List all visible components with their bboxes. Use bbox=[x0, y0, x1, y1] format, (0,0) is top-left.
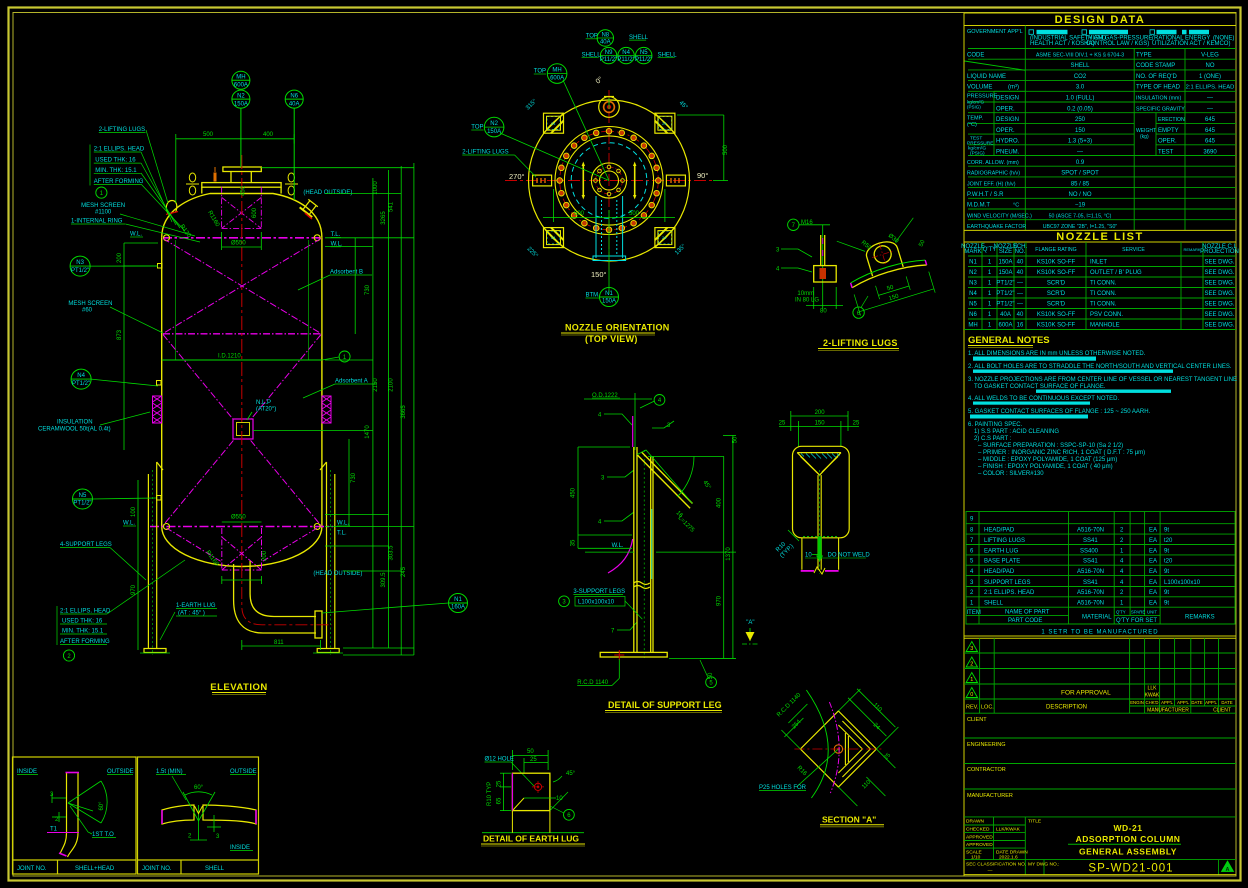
svg-text:REMARK: REMARK bbox=[1183, 247, 1200, 252]
svg-text:DATE: DATE bbox=[1191, 700, 1202, 705]
svg-text:CHK'D: CHK'D bbox=[1146, 700, 1159, 705]
svg-text:HEAD/PAD: HEAD/PAD bbox=[984, 528, 1015, 534]
svg-text:TEMP.: TEMP. bbox=[967, 116, 984, 122]
svg-text:INSULATION: INSULATION bbox=[57, 420, 93, 426]
svg-text:M.D.M.T: M.D.M.T bbox=[967, 203, 990, 209]
svg-text:N6: N6 bbox=[290, 93, 298, 99]
svg-text:L100x100x10: L100x100x10 bbox=[1164, 580, 1201, 586]
svg-text:16: 16 bbox=[1017, 323, 1024, 329]
svg-text:LIQUID NAME: LIQUID NAME bbox=[967, 74, 1006, 80]
svg-text:W.L.: W.L. bbox=[612, 543, 624, 549]
svg-text:TYPE: TYPE bbox=[1136, 53, 1152, 59]
svg-text:SCR'D: SCR'D bbox=[1047, 302, 1066, 308]
svg-text:MIN. THK: 15.1: MIN. THK: 15.1 bbox=[62, 629, 104, 635]
svg-text:W.L.: W.L. bbox=[337, 521, 349, 527]
svg-text:KS10K SO-FF: KS10K SO-FF bbox=[1037, 270, 1076, 276]
svg-text:N.L.P: N.L.P bbox=[256, 400, 271, 406]
svg-text:R.C.D 1140: R.C.D 1140 bbox=[577, 680, 609, 686]
svg-text:CODE STAMP: CODE STAMP bbox=[1136, 63, 1175, 69]
svg-text:85 / 85: 85 / 85 bbox=[1071, 181, 1090, 187]
svg-text:A516-70N: A516-70N bbox=[1077, 569, 1104, 575]
svg-text:LLK: LLK bbox=[1148, 686, 1158, 692]
svg-text:3265: 3265 bbox=[381, 211, 387, 225]
svg-text:2150: 2150 bbox=[373, 378, 379, 392]
svg-text:Q'TY FOR SET: Q'TY FOR SET bbox=[1116, 618, 1157, 624]
svg-text:T1: T1 bbox=[50, 827, 58, 833]
svg-text:3.0: 3.0 bbox=[1076, 85, 1085, 91]
svg-text:200: 200 bbox=[117, 252, 123, 263]
svg-text:LIFTING LUGS: LIFTING LUGS bbox=[984, 538, 1025, 544]
svg-text:3690: 3690 bbox=[1203, 149, 1217, 155]
svg-text:80: 80 bbox=[820, 309, 827, 315]
svg-text:NOZZLE LIST: NOZZLE LIST bbox=[1056, 231, 1143, 243]
svg-text:NO: NO bbox=[1206, 63, 1215, 69]
svg-text:SUPPORT LEGS: SUPPORT LEGS bbox=[984, 580, 1030, 586]
svg-text:V-LEG: V-LEG bbox=[1201, 53, 1219, 59]
svg-text:CODE: CODE bbox=[967, 53, 984, 59]
svg-text:N2: N2 bbox=[969, 270, 977, 276]
svg-text:CLIENT: CLIENT bbox=[967, 717, 987, 723]
svg-text:CHECKED: CHECKED bbox=[966, 827, 990, 833]
svg-text:DESIGN: DESIGN bbox=[996, 117, 1019, 123]
svg-text:PT1/2": PT1/2" bbox=[73, 501, 91, 507]
svg-text:UTILIZATION ACT / KEMCO): UTILIZATION ACT / KEMCO) bbox=[1152, 41, 1230, 47]
svg-text:P11/2": P11/2" bbox=[600, 57, 617, 63]
svg-text:3665: 3665 bbox=[401, 405, 407, 419]
svg-text:TI CONN.: TI CONN. bbox=[1090, 291, 1117, 297]
svg-text:24: 24 bbox=[662, 121, 667, 126]
svg-text:IN 80 LG: IN 80 LG bbox=[795, 298, 819, 304]
svg-text:1) S.S PART : ACID CLEANING: 1) S.S PART : ACID CLEANING bbox=[974, 429, 1059, 435]
svg-text:Ø550: Ø550 bbox=[231, 515, 246, 521]
svg-text:PNEUM.: PNEUM. bbox=[996, 149, 1020, 155]
svg-text:N3: N3 bbox=[969, 281, 977, 287]
svg-text:KS10K SO-FF: KS10K SO-FF bbox=[1037, 312, 1076, 318]
svg-text:N8: N8 bbox=[601, 32, 609, 38]
svg-text:DRAWN: DRAWN bbox=[966, 819, 984, 825]
svg-text:N6: N6 bbox=[969, 312, 977, 318]
svg-text:−19: −19 bbox=[1075, 203, 1086, 209]
svg-text:MANHOLE: MANHOLE bbox=[1090, 323, 1120, 329]
svg-text:LOC.: LOC. bbox=[981, 705, 994, 711]
svg-text:MH: MH bbox=[968, 323, 977, 329]
svg-text:SEE DWG.: SEE DWG. bbox=[1204, 302, 1234, 308]
svg-text:10: 10 bbox=[556, 796, 563, 802]
svg-text:MH: MH bbox=[236, 75, 245, 81]
svg-text:PSV CONN.: PSV CONN. bbox=[1090, 312, 1123, 318]
svg-text:PROJECTION: PROJECTION bbox=[1200, 249, 1239, 255]
svg-text:2) C.S PART :: 2) C.S PART : bbox=[974, 436, 1012, 442]
svg-text:4. ALL WELDS TO BE CONTINUOUS: 4. ALL WELDS TO BE CONTINUOUS EXCEPT NOT… bbox=[968, 396, 1119, 402]
svg-text:873: 873 bbox=[117, 329, 123, 340]
svg-text:MANUFACTURER: MANUFACTURER bbox=[967, 793, 1013, 799]
svg-text:DETAIL OF EARTH LUG: DETAIL OF EARTH LUG bbox=[483, 834, 579, 844]
svg-text:N1: N1 bbox=[454, 597, 462, 603]
svg-text:645: 645 bbox=[1205, 117, 1216, 123]
svg-text:6. PAINTING SPEC.: 6. PAINTING SPEC. bbox=[968, 422, 1023, 428]
svg-text:—: — bbox=[988, 869, 993, 874]
svg-text:P.W.H.T / S.R: P.W.H.T / S.R bbox=[967, 192, 1004, 198]
svg-text:(AT20°): (AT20°) bbox=[256, 407, 276, 413]
svg-text:VOLUME: VOLUME bbox=[967, 85, 992, 91]
svg-text:APP'L: APP'L bbox=[1205, 700, 1217, 705]
svg-text:P11/2": P11/2" bbox=[635, 57, 652, 63]
svg-text:N5: N5 bbox=[969, 302, 977, 308]
svg-text:2:1 ELLIPS. HEAD: 2:1 ELLIPS. HEAD bbox=[984, 590, 1035, 596]
svg-text:EA: EA bbox=[1149, 569, 1157, 575]
svg-text:730: 730 bbox=[351, 472, 357, 483]
svg-text:160A: 160A bbox=[451, 605, 465, 611]
svg-text:5. GASKET CONTACT SURFACES OF: 5. GASKET CONTACT SURFACES OF FLANGE : 1… bbox=[968, 409, 1151, 415]
svg-text:500: 500 bbox=[574, 211, 585, 217]
svg-text:N3: N3 bbox=[76, 260, 84, 266]
svg-text:LLK/KWAK: LLK/KWAK bbox=[996, 827, 1021, 833]
svg-text:N5: N5 bbox=[79, 493, 87, 499]
svg-text:EARTHQUAKE FACTOR: EARTHQUAKE FACTOR bbox=[967, 224, 1026, 230]
svg-text:EA: EA bbox=[1149, 590, 1157, 596]
svg-text:(TOP VIEW): (TOP VIEW) bbox=[585, 334, 638, 344]
svg-text:40: 40 bbox=[1017, 312, 1024, 318]
svg-text:AFTER FORMING: AFTER FORMING bbox=[94, 179, 144, 185]
svg-text:CO2: CO2 bbox=[1074, 74, 1087, 80]
svg-text:N4: N4 bbox=[969, 291, 977, 297]
svg-text:FOR APPROVAL: FOR APPROVAL bbox=[1061, 690, 1111, 697]
svg-text:(NONE): (NONE) bbox=[1213, 36, 1234, 42]
svg-text:KS10K SO-FF: KS10K SO-FF bbox=[1037, 260, 1076, 266]
svg-text:645: 645 bbox=[1205, 128, 1216, 134]
svg-text:INLET: INLET bbox=[1090, 260, 1107, 266]
svg-text:50: 50 bbox=[708, 672, 714, 679]
svg-text:KS10K SO-FF: KS10K SO-FF bbox=[1037, 323, 1076, 329]
svg-text:PART CODE: PART CODE bbox=[1008, 618, 1042, 624]
svg-text:RADIOGRAPHIC (h/v): RADIOGRAPHIC (h/v) bbox=[967, 171, 1020, 177]
svg-text:REMARKS: REMARKS bbox=[1185, 615, 1215, 621]
svg-text:2100: 2100 bbox=[389, 378, 395, 392]
svg-text:DESCRIPTION: DESCRIPTION bbox=[1046, 705, 1087, 711]
svg-text:APP'L: APP'L bbox=[1177, 700, 1189, 705]
svg-text:#1100: #1100 bbox=[95, 210, 112, 216]
svg-text:TI CONN.: TI CONN. bbox=[1090, 302, 1117, 308]
svg-text:MIN. THK: 15.1: MIN. THK: 15.1 bbox=[95, 168, 137, 174]
svg-text:ENGINEERING: ENGINEERING bbox=[967, 742, 1006, 748]
svg-text:SIZE: SIZE bbox=[999, 249, 1012, 255]
svg-text:50: 50 bbox=[527, 749, 534, 755]
svg-text:ASME SEC-VIII DIV.1 + KS § 670: ASME SEC-VIII DIV.1 + KS § 6704-3 bbox=[1036, 53, 1124, 59]
svg-text:1000: 1000 bbox=[373, 181, 379, 195]
svg-text:0: 0 bbox=[970, 692, 973, 698]
svg-text:HEAD/PAD: HEAD/PAD bbox=[984, 569, 1015, 575]
svg-text:Ø550: Ø550 bbox=[231, 241, 246, 247]
svg-text:SS41: SS41 bbox=[1083, 538, 1098, 544]
svg-text:TYPE OF HEAD: TYPE OF HEAD bbox=[1136, 85, 1181, 91]
svg-text:P11/2": P11/2" bbox=[617, 57, 634, 63]
svg-text:MESH SCREEN: MESH SCREEN bbox=[68, 301, 112, 307]
svg-text:NAME OF PART: NAME OF PART bbox=[1005, 610, 1050, 616]
svg-text:1 (ONE): 1 (ONE) bbox=[1199, 74, 1221, 80]
svg-text:40: 40 bbox=[1017, 260, 1024, 266]
svg-text:—: — bbox=[1207, 106, 1213, 112]
svg-text:L100x100x10: L100x100x10 bbox=[578, 600, 615, 606]
svg-text:FLANGE RATING: FLANGE RATING bbox=[1035, 247, 1076, 253]
svg-text:t20: t20 bbox=[1164, 538, 1173, 544]
svg-text:9t: 9t bbox=[1164, 548, 1169, 554]
svg-text:40A: 40A bbox=[289, 101, 300, 107]
svg-text:—: — bbox=[1077, 149, 1083, 155]
svg-text:JOINT EFF. (H) (h/v): JOINT EFF. (H) (h/v) bbox=[967, 181, 1016, 187]
svg-text:SEC CLASSIFICATION NO.: SEC CLASSIFICATION NO. bbox=[966, 862, 1026, 868]
svg-text:EA: EA bbox=[1149, 538, 1157, 544]
svg-text:9t: 9t bbox=[1164, 569, 1169, 575]
svg-text:270°: 270° bbox=[509, 172, 525, 181]
svg-text:50 (ASCE 7-05, I=1.15, °C): 50 (ASCE 7-05, I=1.15, °C) bbox=[1049, 213, 1112, 219]
svg-text:2. ALL BOLT HOLES ARE TO STRAD: 2. ALL BOLT HOLES ARE TO STRADDLE THE NO… bbox=[968, 364, 1232, 370]
svg-text:MY DWG NO.:: MY DWG NO.: bbox=[1028, 862, 1059, 868]
svg-text:200: 200 bbox=[262, 550, 268, 561]
svg-text:(HEAD OUTSIDE): (HEAD OUTSIDE) bbox=[313, 571, 362, 577]
svg-text:970: 970 bbox=[131, 584, 137, 595]
svg-text:500: 500 bbox=[629, 211, 640, 217]
svg-text:A516-70N: A516-70N bbox=[1077, 528, 1104, 534]
svg-text:SEE DWG.: SEE DWG. bbox=[1204, 291, 1234, 297]
svg-text:SECTION "A": SECTION "A" bbox=[822, 815, 876, 825]
svg-text:309.5: 309.5 bbox=[381, 572, 387, 588]
svg-text:N4: N4 bbox=[622, 50, 630, 56]
svg-text:500: 500 bbox=[203, 132, 214, 138]
svg-text:GENERAL NOTES: GENERAL NOTES bbox=[968, 335, 1050, 346]
svg-text:t20: t20 bbox=[1164, 559, 1173, 565]
svg-text:600A: 600A bbox=[234, 83, 248, 89]
svg-text:(m³): (m³) bbox=[1008, 85, 1019, 91]
svg-text:40A: 40A bbox=[1000, 312, 1011, 318]
svg-text:ITEM: ITEM bbox=[967, 610, 981, 616]
svg-text:EMPTY: EMPTY bbox=[1158, 128, 1179, 134]
svg-text:150A: 150A bbox=[602, 299, 616, 305]
svg-text:W.L.: W.L. bbox=[123, 521, 135, 527]
svg-text:(kg): (kg) bbox=[1140, 134, 1149, 140]
svg-text:600A: 600A bbox=[550, 75, 564, 81]
svg-text:OUTSIDE: OUTSIDE bbox=[107, 769, 134, 775]
svg-text:N5: N5 bbox=[640, 50, 648, 56]
svg-text:1.5t (MIN): 1.5t (MIN) bbox=[156, 769, 183, 775]
svg-text:0.9: 0.9 bbox=[1076, 160, 1085, 166]
svg-text:SEE DWG.: SEE DWG. bbox=[1204, 281, 1234, 287]
svg-text:450: 450 bbox=[571, 487, 577, 498]
svg-text:100: 100 bbox=[131, 506, 137, 517]
svg-text:CERAMWOOL 50t(AL 0.4t): CERAMWOOL 50t(AL 0.4t) bbox=[38, 427, 111, 433]
svg-text:INSIDE: INSIDE bbox=[17, 769, 37, 775]
svg-text:PT1/2": PT1/2" bbox=[996, 291, 1014, 297]
svg-text:25: 25 bbox=[497, 780, 503, 787]
svg-text:UBC97 ZONE "2B", I=1.25, "S0": UBC97 ZONE "2B", I=1.25, "S0" bbox=[1043, 224, 1118, 230]
svg-text:KWAK: KWAK bbox=[1145, 693, 1160, 699]
svg-text:WD-21: WD-21 bbox=[1114, 823, 1143, 833]
svg-text:DESIGN DATA: DESIGN DATA bbox=[1055, 14, 1146, 26]
svg-text:BTM.: BTM. bbox=[586, 293, 601, 299]
svg-text:UNIT: UNIT bbox=[1147, 610, 1157, 615]
svg-text:R10 TYP: R10 TYP bbox=[487, 782, 493, 806]
svg-text:SCR'D: SCR'D bbox=[1047, 291, 1066, 297]
svg-text:2:1 ELLIPS. HEAD: 2:1 ELLIPS. HEAD bbox=[1186, 85, 1235, 91]
svg-text:3. NOZZLE PROJECTIONS ARE FROM: 3. NOZZLE PROJECTIONS ARE FROM CENTER LI… bbox=[968, 377, 1237, 383]
svg-text:– SURFACE PREPARATION : SSPC-: – SURFACE PREPARATION : SSPC-SP-10 (Sa 2… bbox=[978, 443, 1123, 449]
svg-text:SERVICE: SERVICE bbox=[1122, 247, 1145, 253]
svg-text:—: — bbox=[1017, 302, 1023, 308]
svg-text:Adsorbent B: Adsorbent B bbox=[330, 270, 363, 276]
svg-text:APPROVED: APPROVED bbox=[966, 835, 993, 841]
svg-text:1.0 (FULL): 1.0 (FULL) bbox=[1066, 96, 1095, 102]
svg-text:NO. OF REQ'D: NO. OF REQ'D bbox=[1136, 74, 1177, 80]
svg-text:9t: 9t bbox=[1164, 601, 1169, 607]
svg-text:1370: 1370 bbox=[726, 547, 732, 561]
svg-text:MH: MH bbox=[552, 68, 561, 74]
svg-text:2:1 ELLIPS. HEAD: 2:1 ELLIPS. HEAD bbox=[94, 147, 145, 153]
svg-text:SHELL: SHELL bbox=[205, 866, 225, 872]
svg-text:1 SETR TO BE MANUFACTURED: 1 SETR TO BE MANUFACTURED bbox=[1041, 630, 1158, 636]
svg-text:MESH SCREEN: MESH SCREEN bbox=[81, 203, 125, 209]
svg-text:811: 811 bbox=[274, 640, 284, 646]
svg-text:500: 500 bbox=[723, 144, 729, 155]
svg-text:(HEAD OUTSIDE): (HEAD OUTSIDE) bbox=[303, 190, 352, 196]
svg-text:60°: 60° bbox=[194, 785, 204, 791]
svg-text:DETAIL OF SUPPORT LEG: DETAIL OF SUPPORT LEG bbox=[608, 700, 722, 710]
svg-text:1ST T.O: 1ST T.O bbox=[92, 832, 114, 838]
svg-text:Ø12 HOLE: Ø12 HOLE bbox=[485, 757, 514, 763]
svg-text:0.2 (0.05): 0.2 (0.05) bbox=[1067, 106, 1093, 112]
svg-text:ADSORPTION COLUMN: ADSORPTION COLUMN bbox=[1076, 834, 1181, 844]
svg-text:2: 2 bbox=[970, 662, 973, 668]
svg-text:I.D.1210: I.D.1210 bbox=[218, 354, 241, 360]
svg-text:25: 25 bbox=[530, 757, 537, 763]
svg-text:SPECIFIC GRAVITY: SPECIFIC GRAVITY bbox=[1136, 106, 1185, 112]
svg-text:BASE PLATE: BASE PLATE bbox=[984, 559, 1020, 565]
svg-text:SEE DWG.: SEE DWG. bbox=[1204, 270, 1234, 276]
svg-text:PT1/2": PT1/2" bbox=[71, 268, 89, 274]
svg-text:N1: N1 bbox=[969, 260, 977, 266]
svg-text:MARK: MARK bbox=[964, 249, 981, 255]
svg-text:EA: EA bbox=[1149, 559, 1157, 565]
svg-text:A516-70N: A516-70N bbox=[1077, 590, 1104, 596]
svg-text:(°C): (°C) bbox=[967, 122, 977, 128]
svg-text:REV.: REV. bbox=[966, 705, 979, 711]
svg-text:(PSIG): (PSIG) bbox=[970, 151, 985, 157]
svg-text:JOINT NO.: JOINT NO. bbox=[142, 866, 172, 872]
svg-text:730: 730 bbox=[365, 284, 371, 295]
svg-text:2022.1.6: 2022.1.6 bbox=[999, 855, 1018, 861]
svg-text:PT1/2": PT1/2" bbox=[996, 281, 1014, 287]
svg-text:CONTRACTOR: CONTRACTOR bbox=[967, 767, 1006, 773]
svg-text:SPARE: SPARE bbox=[1131, 610, 1145, 615]
svg-text:CONTROL LAW / KGS): CONTROL LAW / KGS) bbox=[1086, 41, 1149, 47]
svg-text:3: 3 bbox=[970, 646, 973, 652]
svg-text:200: 200 bbox=[815, 410, 826, 416]
svg-text:EARTH LUG: EARTH LUG bbox=[984, 548, 1019, 554]
svg-text:9t: 9t bbox=[1164, 590, 1169, 596]
svg-text:OUTLET / B' PLUG: OUTLET / B' PLUG bbox=[1090, 270, 1142, 276]
svg-text:303.5: 303.5 bbox=[389, 545, 395, 561]
svg-text:40A: 40A bbox=[600, 39, 611, 45]
svg-text:9t: 9t bbox=[1164, 528, 1169, 534]
svg-text:SHELL: SHELL bbox=[984, 601, 1004, 607]
svg-text:150: 150 bbox=[1075, 128, 1086, 134]
svg-text:EA: EA bbox=[1149, 580, 1157, 586]
svg-text:HYDRO.: HYDRO. bbox=[996, 139, 1020, 145]
svg-text:25: 25 bbox=[779, 421, 786, 427]
svg-text:SS41: SS41 bbox=[1083, 559, 1098, 565]
svg-text:OPER.: OPER. bbox=[996, 106, 1015, 112]
svg-text:INSIDE: INSIDE bbox=[230, 845, 250, 851]
svg-text:A: A bbox=[1226, 867, 1230, 873]
svg-text:SS400: SS400 bbox=[1080, 548, 1099, 554]
svg-text:OPER.: OPER. bbox=[996, 128, 1015, 134]
svg-text:ERECTION: ERECTION bbox=[1158, 117, 1185, 123]
svg-text:SHELL: SHELL bbox=[1070, 63, 1090, 69]
svg-text:AFTER FORMING: AFTER FORMING bbox=[60, 639, 110, 645]
svg-text:2-LIFTING LUGS: 2-LIFTING LUGS bbox=[99, 127, 145, 133]
svg-text:10: 10 bbox=[805, 553, 812, 559]
svg-text:– MIDDLE : EPOXY POLYAMIDE, 1: – MIDDLE : EPOXY POLYAMIDE, 1 COAT (125 … bbox=[978, 457, 1117, 463]
svg-text:250: 250 bbox=[1075, 117, 1086, 123]
svg-text:150: 150 bbox=[815, 421, 826, 427]
svg-text:450: 450 bbox=[241, 185, 247, 196]
svg-text:4-SUPPORT LEGS: 4-SUPPORT LEGS bbox=[60, 542, 112, 548]
svg-text:TO GASKET CONTACT SURFACE OF F: TO GASKET CONTACT SURFACE OF FLANGE. bbox=[974, 384, 1106, 390]
svg-text:Adsorbent A: Adsorbent A bbox=[335, 379, 368, 385]
svg-text:600: 600 bbox=[252, 207, 258, 218]
svg-text:W.L.: W.L. bbox=[130, 232, 142, 238]
svg-text:TITLE: TITLE bbox=[1028, 819, 1041, 825]
svg-text:N9: N9 bbox=[605, 50, 613, 56]
svg-text:PT1/2": PT1/2" bbox=[72, 381, 90, 387]
svg-text:25: 25 bbox=[853, 421, 860, 427]
svg-text:90°: 90° bbox=[697, 171, 708, 180]
svg-text:APP'L: APP'L bbox=[1161, 700, 1173, 705]
svg-text:45°: 45° bbox=[566, 771, 576, 777]
svg-text:ELEVATION: ELEVATION bbox=[210, 682, 267, 693]
svg-text:N2: N2 bbox=[237, 93, 245, 99]
svg-text:T.L.: T.L. bbox=[337, 531, 347, 537]
svg-text:– FINISH : EPOXY POLYAMIDE, 1: – FINISH : EPOXY POLYAMIDE, 1 COAT ( 40 … bbox=[978, 464, 1113, 470]
svg-text:50: 50 bbox=[733, 436, 739, 443]
svg-text:SP-WD21-001: SP-WD21-001 bbox=[1088, 863, 1173, 875]
svg-text:N2: N2 bbox=[490, 121, 498, 127]
svg-text:24: 24 bbox=[551, 121, 556, 126]
svg-text:600A: 600A bbox=[998, 323, 1012, 329]
svg-text:(PSIG): (PSIG) bbox=[967, 105, 981, 110]
svg-text:1-INTERNAL RING: 1-INTERNAL RING bbox=[71, 219, 123, 225]
svg-text:645: 645 bbox=[1205, 139, 1216, 145]
svg-text:N1: N1 bbox=[605, 291, 613, 297]
svg-text:SEE DWG.: SEE DWG. bbox=[1204, 312, 1234, 318]
svg-text:245: 245 bbox=[401, 566, 407, 577]
svg-text:OUTSIDE: OUTSIDE bbox=[230, 769, 257, 775]
svg-text:2:1 ELLIPS. HEAD: 2:1 ELLIPS. HEAD bbox=[60, 609, 111, 615]
svg-text:1.3 (5+3): 1.3 (5+3) bbox=[1068, 139, 1092, 145]
svg-text:HEALTH ACT / KOSHA): HEALTH ACT / KOSHA) bbox=[1030, 41, 1094, 47]
svg-text:°C: °C bbox=[1013, 203, 1019, 209]
svg-text:ENGIN: ENGIN bbox=[1130, 700, 1144, 705]
svg-text:400: 400 bbox=[263, 132, 274, 138]
svg-text:150A: 150A bbox=[234, 101, 248, 107]
svg-text:150A: 150A bbox=[998, 270, 1012, 276]
svg-text:Q'TY: Q'TY bbox=[1116, 610, 1126, 615]
svg-text:970: 970 bbox=[717, 595, 723, 606]
svg-text:10mm: 10mm bbox=[797, 291, 814, 297]
svg-text:3-SUPPORT LEGS: 3-SUPPORT LEGS bbox=[573, 589, 625, 595]
svg-text:– COLOR : SILVER#130: – COLOR : SILVER#130 bbox=[978, 471, 1044, 477]
svg-text:150°: 150° bbox=[591, 270, 607, 279]
svg-text:USED THK: 16: USED THK: 16 bbox=[95, 158, 136, 164]
svg-text:DESIGN: DESIGN bbox=[996, 96, 1019, 102]
